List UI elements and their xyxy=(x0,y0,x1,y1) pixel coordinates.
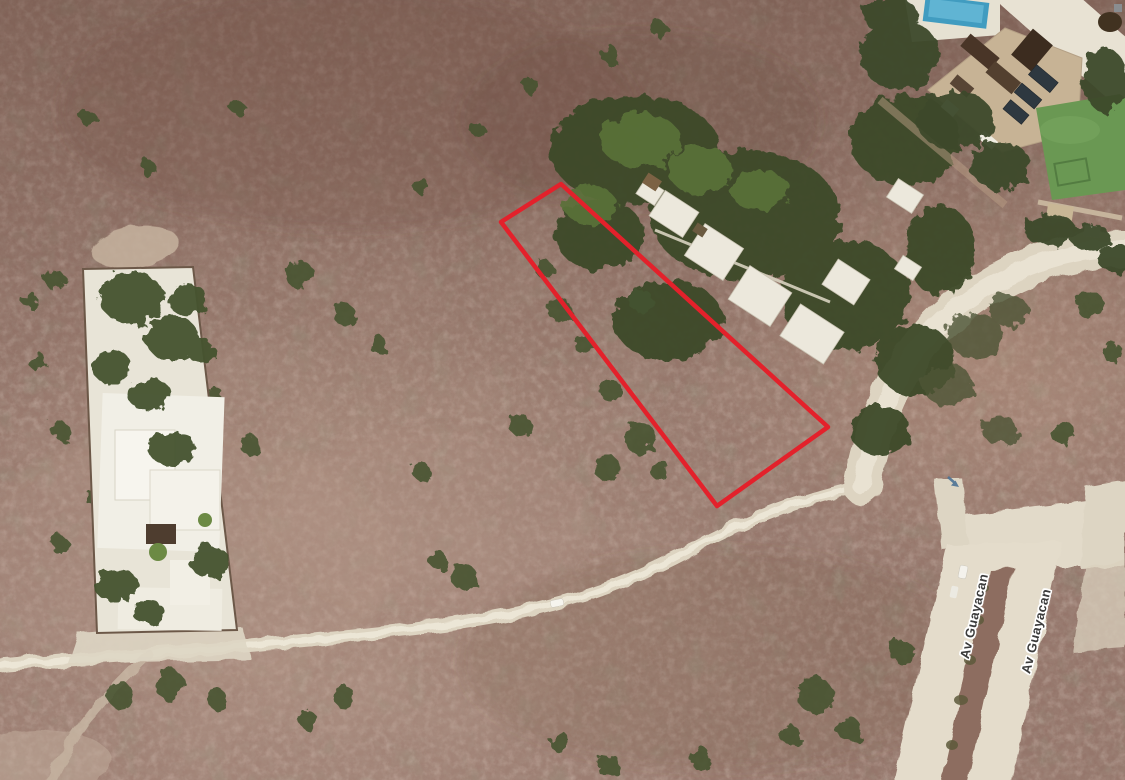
pergola-roof xyxy=(146,524,176,544)
satellite-imagery xyxy=(0,0,1125,780)
shrub-planter xyxy=(1098,12,1122,32)
map-canvas[interactable]: Av Guayacan Av Guayacan xyxy=(0,0,1125,780)
palm-tree xyxy=(149,543,167,561)
